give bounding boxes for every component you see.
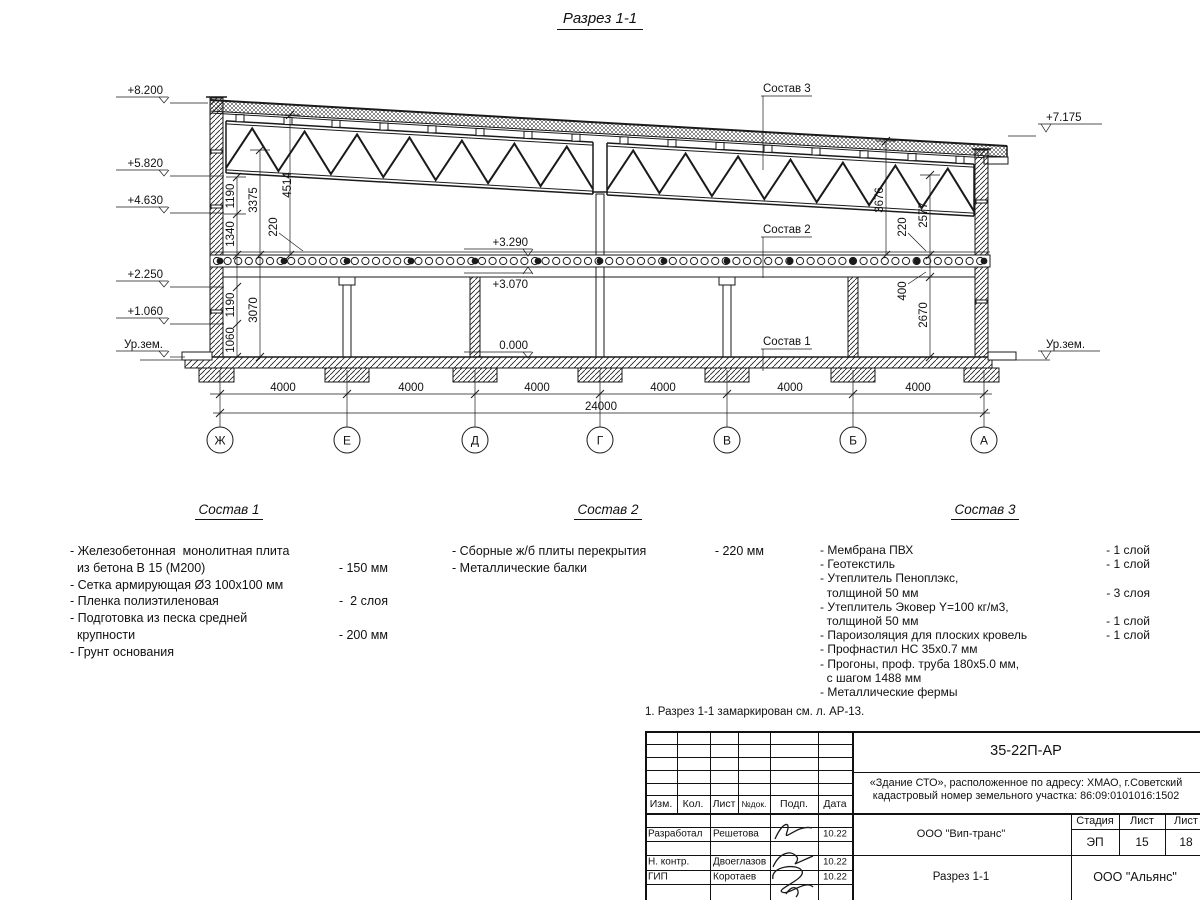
level-0000: 0.000 [499, 340, 528, 352]
composition-list-2: Состав 2 - Сборные ж/б плиты перекрытия-… [452, 502, 764, 577]
dim-1190-top: 1190 [225, 184, 237, 209]
list-item: с шагом 1488 мм [820, 671, 1150, 685]
sheet-value: 15 [1135, 835, 1148, 849]
drawing-sheet: Разрез 1-1 [0, 0, 1200, 900]
axis-v: В [723, 434, 731, 448]
row-date-1: 10.22 [823, 857, 847, 868]
title-block: Изм. Кол. Лист №док. Подп. Дата Разработ… [645, 731, 1200, 900]
stage-label: Стадия [1076, 815, 1114, 827]
dim-4514: 4514 [282, 172, 294, 198]
layer-label-1: Состав 1 [763, 336, 811, 348]
list-item: - Мембрана ПВХ- 1 слой [820, 543, 1150, 557]
list-item: - Утеплитель Пеноплэкс, [820, 571, 1150, 585]
dim-1340: 1340 [225, 221, 237, 247]
list-item: толщиной 50 мм- 1 слой [820, 614, 1150, 628]
list-item: из бетона В 15 (М200)- 150 мм [70, 560, 388, 577]
row-name-1: Двоеглазов [713, 857, 766, 868]
foundations [199, 368, 999, 382]
list-item: крупности- 200 мм [70, 627, 388, 644]
list-item: - Металлические фермы [820, 685, 1150, 699]
axis-zh: Ж [214, 434, 225, 448]
signature-reshetova [772, 819, 816, 843]
layer-leaders: Состав 3 Состав 2 Состав 1 [761, 83, 812, 371]
row-date-0: 10.22 [823, 829, 847, 840]
elevation-markers-right: +7.175 Ур.зем. [1008, 112, 1102, 359]
dim-220-left: 220 [268, 217, 280, 236]
composition-3-title: Состав 3 [820, 502, 1150, 517]
roof-assembly [210, 100, 1008, 164]
col-izm: Изм. [650, 798, 673, 810]
axis-bubbles: Ж Е Д Г В Б А [207, 427, 997, 453]
sheet-title: Разрез 1-1 [933, 871, 989, 883]
left-wall [206, 97, 227, 357]
total-dim: 24000 [585, 401, 617, 413]
col-ndok: №док. [742, 799, 767, 809]
vertical-dimensions: 1190 1340 3375 220 4514 1190 1060 3070 3… [224, 115, 940, 357]
org-center: ООО "Вип-транс" [917, 828, 1005, 840]
axis-a: А [980, 434, 988, 448]
dim-3676: 3676 [874, 187, 886, 213]
elevation-left-3: +2.250 [128, 269, 164, 281]
col-data: Дата [823, 798, 846, 810]
row-role-1: Н. контр. [648, 857, 689, 868]
span-dim-2: 4000 [524, 382, 550, 394]
elevation-left-5: Ур.зем. [124, 339, 163, 351]
composition-1-title: Состав 1 [70, 502, 388, 517]
sheet-note: 1. Разрез 1-1 замаркирован см. л. АР-13. [645, 706, 864, 718]
org-right: ООО "Альянс" [1093, 870, 1177, 884]
elevation-left-2: +4.630 [128, 195, 164, 207]
composition-2-title: Состав 2 [452, 502, 764, 517]
list-item: - Грунт основания [70, 644, 388, 661]
list-item: - Сетка армирующая Ø3 100х100 мм [70, 577, 388, 594]
row-name-2: Коротаев [713, 872, 756, 883]
list-item: - Металлические балки [452, 560, 764, 577]
span-dim-1: 4000 [398, 382, 424, 394]
elevation-left-0: +8.200 [128, 85, 164, 97]
elevation-right-top: +7.175 [1046, 112, 1082, 124]
dim-3070: 3070 [248, 297, 260, 323]
elevation-left-4: +1.060 [128, 306, 164, 318]
dim-1060: 1060 [225, 327, 237, 353]
axis-e: Е [343, 434, 351, 448]
dim-2670: 2670 [918, 302, 930, 328]
right-wall [972, 149, 991, 357]
sheets-value: 18 [1179, 835, 1192, 849]
row-date-2: 10.22 [823, 872, 847, 883]
dim-2577: 2577 [918, 202, 930, 228]
dim-3375: 3375 [248, 187, 260, 213]
elevation-markers-left: +8.200 +5.820 +4.630 +2.250 +1.060 Ур.зе… [116, 85, 224, 357]
composition-list-3: Состав 3 - Мембрана ПВХ- 1 слой - Геотек… [820, 502, 1150, 699]
span-dim-4: 4000 [777, 382, 803, 394]
axis-g: Г [597, 434, 604, 448]
list-item: - Сборные ж/б плиты перекрытия- 220 мм [452, 543, 764, 560]
stage-value: ЭП [1086, 835, 1103, 849]
dim-400: 400 [897, 281, 909, 300]
list-item: - Профнастил НС 35х0.7 мм [820, 642, 1150, 656]
list-item: толщиной 50 мм- 3 слоя [820, 586, 1150, 600]
span-dim-5: 4000 [905, 382, 931, 394]
level-3290: +3.290 [493, 237, 529, 249]
list-item: - Утеплитель Эковер Y=100 кг/м3, [820, 600, 1150, 614]
sheet-label: Лист [1130, 815, 1154, 827]
dim-220-right: 220 [897, 217, 909, 236]
sheets-label: Лист [1174, 815, 1198, 827]
dim-1190-bottom: 1190 [225, 293, 237, 318]
elevation-left-1: +5.820 [128, 158, 164, 170]
layer-label-2: Состав 2 [763, 224, 811, 236]
doc-number: 35-22П-АР [990, 743, 1062, 759]
row-role-2: ГИП [648, 872, 668, 883]
signature-korotaev [768, 861, 818, 899]
elevation-right-ground: Ур.зем. [1046, 339, 1085, 351]
list-item: - Пароизоляция для плоских кровель- 1 сл… [820, 628, 1150, 642]
list-item: - Пленка полиэтиленовая- 2 слоя [70, 593, 388, 610]
col-list: Лист [713, 798, 736, 810]
span-dim-3: 4000 [650, 382, 676, 394]
composition-list-1: Состав 1 - Железобетонная монолитная пли… [70, 502, 388, 661]
ground-floor [140, 352, 1050, 368]
list-item: - Прогоны, проф. труба 180х5.0 мм, [820, 657, 1150, 671]
axis-d: Д [471, 434, 479, 448]
list-item: - Подготовка из песка средней [70, 610, 388, 627]
row-role-0: Разработал [648, 829, 702, 840]
col-kol: Кол. [683, 798, 704, 810]
col-podp: Подп. [780, 798, 808, 810]
row-name-0: Решетова [713, 829, 759, 840]
list-item: - Геотекстиль- 1 слой [820, 557, 1150, 571]
middle-column [592, 192, 608, 357]
level-3070: +3.070 [493, 279, 529, 291]
span-dim-0: 4000 [270, 382, 296, 394]
project-desc-2: кадастровый номер земельного участка: 86… [873, 790, 1179, 802]
list-item: - Железобетонная монолитная плита [70, 543, 388, 560]
layer-label-3: Состав 3 [763, 83, 811, 95]
project-desc-1: «Здание СТО», расположенное по адресу: Х… [870, 777, 1182, 789]
axis-b: Б [849, 434, 857, 448]
